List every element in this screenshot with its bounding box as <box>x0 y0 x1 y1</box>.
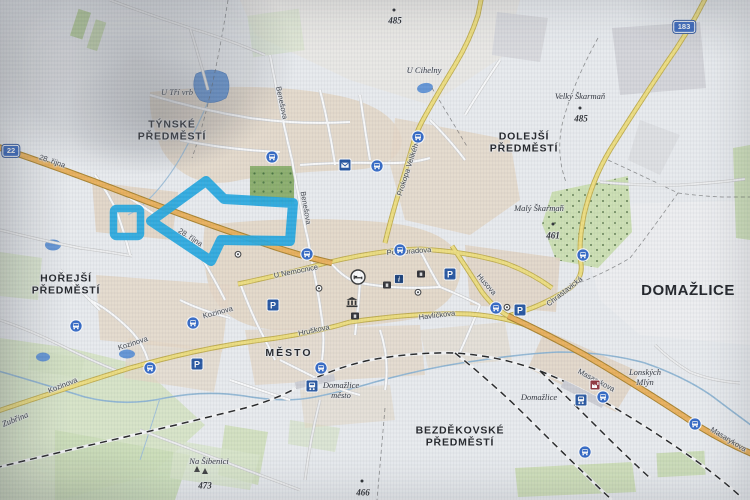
map-canvas[interactable]: TÝNSKÉ PŘEDMĚSTÍDOLEJŠÍ PŘEDMĚSTÍHOŘEJŠÍ… <box>0 0 750 500</box>
annotation-arrow <box>151 181 293 261</box>
annotation-layer <box>0 0 750 500</box>
annotation-highlight-rectangle <box>114 209 141 237</box>
